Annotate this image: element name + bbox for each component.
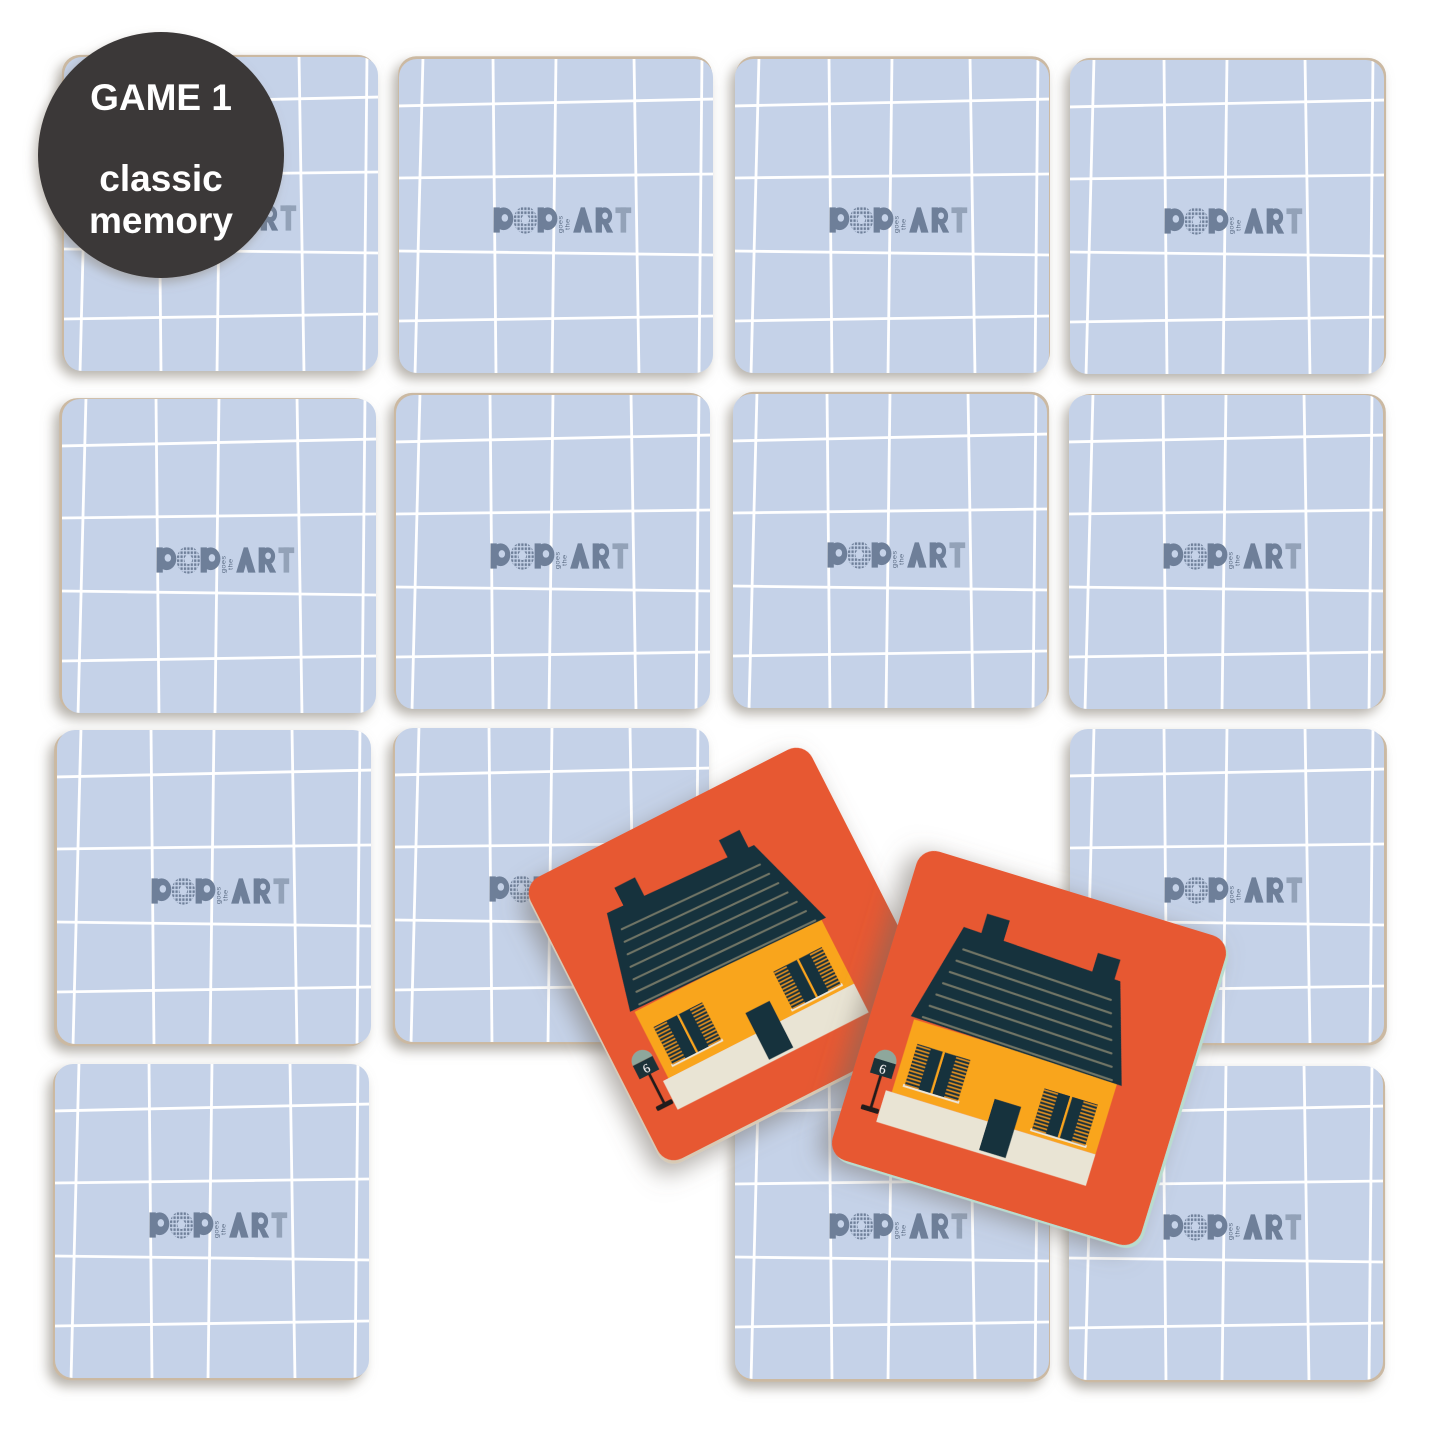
svg-text:classic: classic — [99, 158, 222, 199]
svg-text:GAME 1: GAME 1 — [90, 77, 232, 118]
svg-text:memory: memory — [89, 200, 233, 241]
